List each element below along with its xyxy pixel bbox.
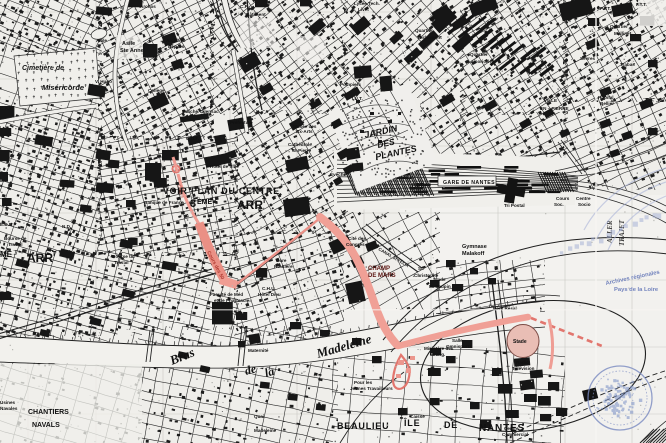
svg-text:Ste Anne: Ste Anne	[120, 48, 144, 54]
svg-text:BEAULIEU: BEAULIEU	[337, 421, 389, 431]
svg-text:Gare: Gare	[276, 258, 287, 263]
svg-text:Marché Talensac: Marché Talensac	[182, 109, 219, 114]
svg-text:Malakoff: Malakoff	[462, 251, 484, 257]
svg-text:Livet: Livet	[358, 7, 369, 12]
svg-text:Hôpital: Hôpital	[598, 95, 614, 100]
svg-text:Cimetière de: Cimetière de	[22, 65, 64, 72]
svg-text:VOIR PLAN DU CENTRE: VOIR PLAN DU CENTRE	[163, 186, 280, 196]
svg-text:Collège: Collège	[148, 88, 165, 93]
svg-text:VILLE: VILLE	[544, 98, 557, 103]
svg-text:Cours: Cours	[556, 196, 570, 201]
svg-text:Bx-Arts: Bx-Arts	[296, 129, 313, 134]
svg-text:Quartier: Quartier	[470, 52, 488, 57]
svg-text:St-Pierre: St-Pierre	[292, 148, 312, 153]
svg-text:C.A.F.: C.A.F.	[0, 106, 13, 111]
svg-text:T: T	[52, 251, 57, 258]
svg-text:V. Hugo: V. Hugo	[95, 79, 112, 84]
svg-text:Quartier: Quartier	[610, 24, 628, 29]
svg-text:E.D.F.: E.D.F.	[0, 222, 13, 227]
svg-text:P.T.T.: P.T.T.	[412, 183, 424, 189]
svg-text:Asile: Asile	[96, 38, 107, 43]
svg-text:M. Saupin: M. Saupin	[429, 284, 451, 289]
svg-text:Lamoricière: Lamoricière	[468, 59, 494, 64]
svg-text:Pompiers: Pompiers	[340, 82, 361, 87]
svg-text:GARE DE NANTES: GARE DE NANTES	[443, 180, 495, 186]
svg-text:ME: ME	[0, 250, 13, 259]
svg-text:Trabas: Trabas	[620, 62, 635, 67]
svg-text:Radio: Radio	[516, 360, 529, 365]
svg-text:St.: St.	[418, 266, 424, 271]
svg-text:Archos: Archos	[140, 4, 156, 9]
svg-text:T: T	[262, 198, 267, 205]
svg-text:Caisse: Caisse	[410, 414, 425, 419]
svg-text:Routière: Routière	[274, 264, 293, 269]
svg-text:DE MARS: DE MARS	[368, 273, 396, 279]
svg-text:Bourse de: Bourse de	[4, 236, 27, 241]
svg-text:Lycée Tech.: Lycée Tech.	[354, 1, 380, 6]
svg-text:Tri Postal: Tri Postal	[504, 203, 525, 208]
svg-text:Jeunes Travailleurs: Jeunes Travailleurs	[350, 386, 393, 391]
svg-text:TRAJET: TRAJET	[618, 219, 626, 246]
svg-text:G.D.F.: G.D.F.	[186, 136, 199, 141]
svg-text:Salle: Salle	[452, 338, 463, 343]
svg-text:ARR: ARR	[27, 251, 53, 265]
svg-text:Centre: Centre	[504, 426, 519, 431]
svg-text:Soc.: Soc.	[554, 202, 564, 207]
svg-text:Télévision: Télévision	[512, 366, 535, 371]
svg-text:C.H.U.: C.H.U.	[262, 286, 276, 291]
svg-text:Maternité: Maternité	[248, 348, 269, 353]
svg-text:C.P.: C.P.	[240, 4, 248, 9]
svg-text:Congrès: Congrès	[346, 242, 365, 247]
svg-text:I.U.T.: I.U.T.	[352, 96, 363, 101]
svg-text:P.T.T.: P.T.T.	[600, 6, 611, 11]
svg-text:Omnisports: Omnisports	[446, 344, 472, 349]
svg-text:Socio: Socio	[578, 202, 591, 207]
svg-text:Pays de la Loire: Pays de la Loire	[614, 287, 659, 293]
svg-text:Stade: Stade	[513, 339, 527, 345]
svg-text:Navales: Navales	[0, 406, 18, 411]
svg-text:Richemont: Richemont	[418, 35, 442, 40]
svg-text:3: 3	[190, 198, 196, 210]
svg-text:F.T.T.: F.T.T.	[636, 2, 647, 7]
svg-text:Préfecture: Préfecture	[230, 120, 253, 125]
svg-text:Archives: Archives	[166, 38, 186, 43]
svg-text:Gymnase: Gymnase	[462, 244, 487, 250]
svg-text:N.D.: N.D.	[62, 224, 71, 229]
svg-text:Asile: Asile	[122, 41, 135, 47]
svg-text:Usines: Usines	[0, 400, 16, 405]
svg-text:Bellier: Bellier	[600, 101, 614, 106]
svg-text:ARR: ARR	[237, 198, 263, 212]
svg-text:Pour les: Pour les	[354, 380, 373, 385]
svg-text:CHAMP: CHAMP	[368, 266, 390, 272]
svg-text:Cathédrale: Cathédrale	[288, 142, 312, 147]
svg-text:ÈME: ÈME	[197, 197, 213, 206]
svg-text:CHANTIERS: CHANTIERS	[28, 409, 69, 416]
svg-text:Sèvres: Sèvres	[580, 56, 596, 61]
svg-text:Bourse du: Bourse du	[112, 254, 135, 259]
svg-text:DE: DE	[444, 420, 458, 430]
svg-text:Miséricorde: Miséricorde	[42, 83, 84, 92]
svg-text:Dép.les: Dép.les	[168, 44, 185, 49]
svg-text:Quartier: Quartier	[415, 28, 433, 33]
svg-text:Stade: Stade	[433, 277, 446, 282]
svg-text:EN – PIERRE: EN – PIERRE	[540, 106, 569, 111]
svg-text:Travail: Travail	[8, 242, 23, 247]
svg-text:Centre: Centre	[576, 196, 591, 201]
svg-text:Banque de France: Banque de France	[144, 200, 184, 205]
svg-text:Faculté de Méd: Faculté de Méd	[210, 292, 243, 297]
svg-text:Cité des: Cité des	[348, 236, 366, 241]
svg-text:Quai: Quai	[254, 414, 264, 419]
svg-text:et de Pharmacie: et de Pharmacie	[214, 298, 250, 303]
svg-text:NAVALS: NAVALS	[32, 422, 60, 429]
svg-text:Madeleine: Madeleine	[254, 428, 277, 433]
svg-text:Hôtel Dieu: Hôtel Dieu	[258, 292, 281, 297]
svg-text:Évêché: Évêché	[330, 170, 347, 177]
svg-text:Travail: Travail	[114, 260, 129, 265]
svg-text:Mellinet: Mellinet	[614, 31, 632, 36]
svg-text:Hôtel de Ville: Hôtel de Ville	[210, 164, 239, 169]
svg-text:Commercial: Commercial	[502, 432, 528, 437]
